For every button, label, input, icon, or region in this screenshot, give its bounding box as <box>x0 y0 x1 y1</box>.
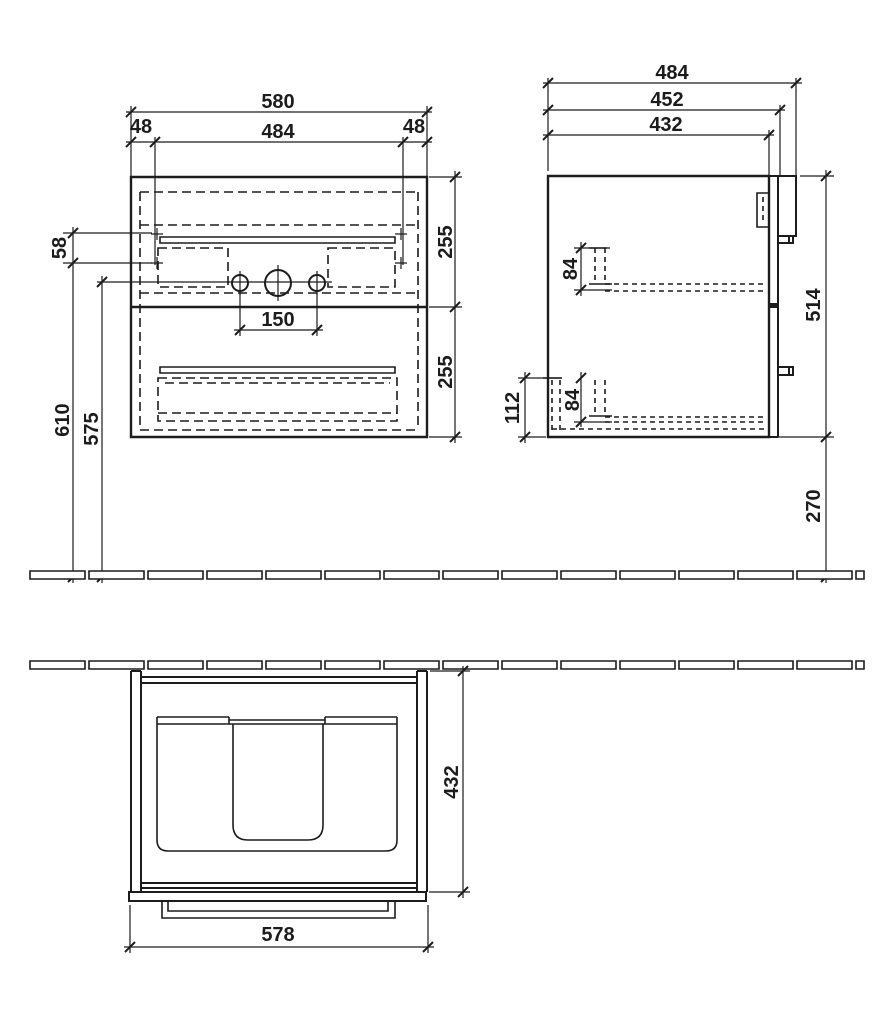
front-centerlines <box>97 265 332 301</box>
dim-plan-width: 578 <box>261 924 294 946</box>
dim-front-upper-height: 255 <box>435 225 457 258</box>
dim-front-tap-spacing: 150 <box>261 309 294 331</box>
plan-front-edge <box>129 892 426 901</box>
dim-side-floor-clearance: 270 <box>803 489 825 522</box>
front-dimension-ticks <box>68 107 460 582</box>
dim-front-overall-width: 580 <box>261 91 294 113</box>
floor-planks-lower <box>30 661 864 669</box>
plan-dimensions: 432 578 <box>124 666 470 953</box>
plan-basin-bowl <box>233 724 323 840</box>
floor-line-elevation <box>30 571 864 579</box>
side-front-divider-joint <box>768 303 778 308</box>
technical-drawing-page: 580 48 484 48 255 255 58 610 575 150 484… <box>0 0 879 1024</box>
front-view <box>97 177 427 437</box>
dim-side-carcass-depth: 432 <box>649 114 682 136</box>
vanity-cabinet-drawing: 580 48 484 48 255 255 58 610 575 150 484… <box>0 0 879 1024</box>
side-hidden-lines <box>552 197 766 431</box>
dim-side-upper-rail: 84 <box>560 257 582 280</box>
dim-front-rail-height: 610 <box>52 403 74 436</box>
side-dimension-lines <box>518 78 834 583</box>
dim-side-back-recess: 112 <box>502 392 524 424</box>
plan-dimension-lines <box>124 666 470 953</box>
front-lower-handle <box>160 367 395 373</box>
dim-side-front-depth: 452 <box>650 89 683 111</box>
dim-front-lower-height: 255 <box>435 355 457 388</box>
plan-carcass-outline <box>131 671 427 892</box>
dim-plan-depth: 432 <box>441 765 463 798</box>
dim-front-rail-spacing: 58 <box>49 237 71 259</box>
wall-line-plan <box>30 661 864 669</box>
floor-planks-upper <box>30 571 864 579</box>
front-upper-handle <box>160 237 395 243</box>
front-carcass-outline <box>131 177 427 437</box>
dim-front-right-panel: 48 <box>403 116 425 138</box>
plan-drawer-front <box>162 901 395 918</box>
front-dimensions: 580 48 484 48 255 255 58 610 575 150 <box>49 91 462 583</box>
dim-front-inner-width: 484 <box>261 121 295 143</box>
dim-side-overall-depth: 484 <box>655 62 689 84</box>
dim-side-lower-rail: 84 <box>562 388 584 411</box>
dim-front-left-panel: 48 <box>130 116 152 138</box>
dim-side-carcass-height: 514 <box>803 287 825 321</box>
plan-view <box>129 671 427 918</box>
side-dimension-ticks <box>520 78 831 582</box>
side-dimensions: 484 452 432 514 270 84 84 112 <box>502 62 834 583</box>
dim-front-tap-height: 575 <box>81 412 103 445</box>
plan-washbasin-outline <box>157 717 397 851</box>
